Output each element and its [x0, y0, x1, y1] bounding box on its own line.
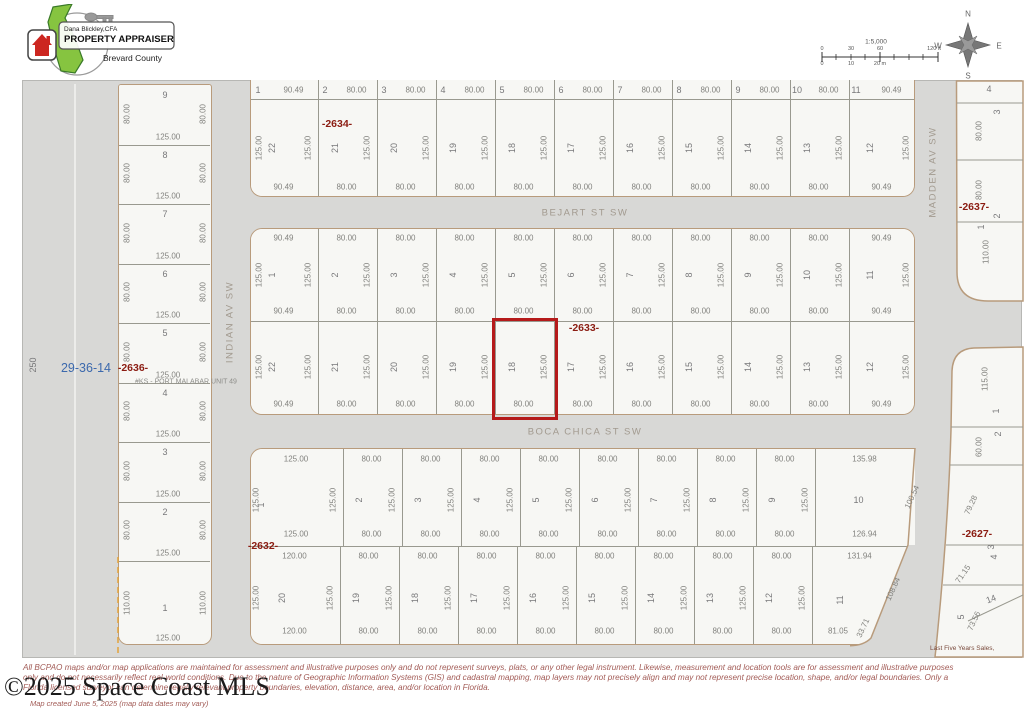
lot-number: 17	[566, 362, 576, 372]
lot-dimension: 80.00	[123, 342, 132, 362]
lot-number: 2	[330, 272, 340, 277]
lot-dimension: 125.00	[742, 488, 751, 512]
lot-dimension: 80.00	[774, 530, 794, 539]
lot-dimension: 80.00	[199, 520, 208, 540]
lot-dimension: 80.00	[631, 183, 651, 192]
lot-dimension: 80.00	[759, 86, 779, 95]
lot-number: 13	[802, 143, 812, 153]
lot-dimension: 80.00	[572, 307, 592, 316]
scale-m-label: 10	[848, 61, 854, 67]
lot-dimension: 80.00	[395, 307, 415, 316]
lot-number: 9	[735, 85, 740, 95]
lot-dimension: 80.00	[479, 455, 499, 464]
lot-dimension: 125.00	[444, 586, 453, 610]
sales-note: Last Five Years Sales,	[930, 645, 994, 652]
lot-dimension: 125.00	[540, 136, 549, 160]
lot-dimension: 125.00	[304, 355, 313, 379]
lot-number: 1	[255, 85, 260, 95]
lot-number: 12	[865, 362, 875, 372]
lot-number: 7	[625, 272, 635, 277]
lot-dimension: 80.00	[361, 455, 381, 464]
lot-dimension: 80.00	[771, 627, 791, 636]
lot-dimension: 80.00	[690, 234, 710, 243]
lot-dimension: 80.00	[975, 180, 984, 200]
lot-dimension: 80.00	[336, 234, 356, 243]
lot-dimension: 125.00	[252, 488, 261, 512]
lot-dimension: 126.94	[852, 530, 876, 539]
lot-dimension: 125.00	[506, 488, 515, 512]
lot-dimension: 125.00	[835, 263, 844, 287]
lot-dimension: 125.00	[683, 488, 692, 512]
lot-dimension: 90.49	[871, 307, 891, 316]
lot-dimension: 80.00	[975, 121, 984, 141]
lot-number: 8	[708, 497, 718, 502]
lot-dimension: 80.00	[700, 86, 720, 95]
appraiser-title: PROPERTY APPRAISER	[64, 34, 174, 45]
lot-number: 3	[381, 85, 386, 95]
lot-dimension: 125.00	[252, 586, 261, 610]
lot-dimension: 80.00	[199, 342, 208, 362]
lot-dimension: 125.00	[156, 251, 180, 260]
lot-number: 4	[989, 554, 999, 559]
lot-dimension: 80.00	[123, 104, 132, 124]
lot-dimension: 80.00	[749, 400, 769, 409]
block-label-2634: -2634-	[322, 118, 352, 130]
lot-dimension: 80.00	[123, 282, 132, 302]
lot-number: 4	[472, 497, 482, 502]
lot-number: 16	[625, 143, 635, 153]
lot-number: 5	[162, 328, 167, 338]
lot-dimension: 125.00	[624, 488, 633, 512]
lot-number: 16	[625, 362, 635, 372]
lot-dimension: 80.00	[361, 530, 381, 539]
lot-dimension: 80.00	[690, 307, 710, 316]
lot-dimension: 60.00	[975, 437, 984, 457]
lot-number: 19	[448, 362, 458, 372]
lot-dimension: 80.00	[771, 552, 791, 561]
lot-dimension: 125.00	[481, 355, 490, 379]
lot-dimension: 80.00	[690, 183, 710, 192]
lot-dimension: 90.49	[283, 86, 303, 95]
block-label-2636: -2636-	[118, 362, 148, 374]
lot-dimension: 90.49	[273, 234, 293, 243]
lot-dimension: 125.00	[156, 634, 180, 643]
scale-ft-label: 0	[820, 46, 823, 52]
lot-dimension: 80.00	[454, 234, 474, 243]
lot-dimension: 80.00	[123, 461, 132, 481]
lot-dimension: 120.00	[282, 552, 306, 561]
lot-dimension: 90.49	[871, 400, 891, 409]
lot-dimension: 125.00	[422, 355, 431, 379]
plat-map-page: Dana Blickley,CFA PROPERTY APPRAISER Bre…	[0, 0, 1024, 725]
lot-number: 4	[986, 84, 991, 94]
lot-dimension: 80.00	[513, 183, 533, 192]
lot-dimension: 80.00	[808, 307, 828, 316]
lot-dimension: 80.00	[572, 183, 592, 192]
lot-dimension: 80.00	[336, 400, 356, 409]
lot-dimension: 125.00	[388, 488, 397, 512]
lot-dimension: 125.00	[599, 263, 608, 287]
lot-number: 16	[528, 593, 538, 603]
lot-dimension: 125.00	[156, 489, 180, 498]
highlighted-lot-18	[492, 318, 558, 420]
mls-watermark: ©2025 Space Coast MLS	[4, 672, 270, 702]
lot-dimension: 80.00	[479, 530, 499, 539]
lot-dimension: 125.00	[658, 263, 667, 287]
lot-number: 5	[499, 85, 504, 95]
lot-dimension: 125.00	[284, 530, 308, 539]
lot-dimension: 125.00	[481, 263, 490, 287]
lot-dimension: 80.00	[749, 183, 769, 192]
lot-dimension: 125.00	[562, 586, 571, 610]
lot-dimension: 80.00	[572, 234, 592, 243]
lot-dimension: 125.00	[621, 586, 630, 610]
lot-dimension: 125.00	[284, 455, 308, 464]
lot-dimension: 125.00	[156, 311, 180, 320]
lot-dimension: 80.00	[199, 401, 208, 421]
lot-number: 7	[617, 85, 622, 95]
lot-dimension: 80.00	[420, 455, 440, 464]
block-label-2632: -2632-	[248, 540, 278, 552]
lot-dimension: 80.00	[454, 400, 474, 409]
lot-number: 11	[835, 595, 845, 604]
lot-dimension: 80.00	[535, 552, 555, 561]
lot-dimension: 80.00	[395, 183, 415, 192]
lot-number: 4	[162, 388, 167, 398]
lot-number: 22	[267, 143, 277, 153]
lot-dimension: 80.00	[749, 234, 769, 243]
compass-n: N	[965, 10, 971, 19]
lot-number: 6	[566, 272, 576, 277]
lot-number: 15	[684, 143, 694, 153]
block-label-2633: -2633-	[569, 322, 599, 334]
lot-dimension: 110.00	[982, 240, 991, 264]
lot-dimension: 125.00	[422, 136, 431, 160]
lot-dimension: 110.00	[123, 591, 132, 615]
lot-dimension: 125.00	[255, 263, 264, 287]
lot-dimension: 135.98	[852, 455, 876, 464]
block-2632	[250, 448, 915, 645]
lot-dimension: 125.00	[798, 586, 807, 610]
lot-dimension: 125.00	[156, 370, 180, 379]
lot-number: 3	[413, 497, 423, 502]
lot-number: 1	[991, 408, 1001, 413]
lot-dimension: 125.00	[801, 488, 810, 512]
lot-number: 20	[389, 362, 399, 372]
lot-number: 3	[162, 447, 167, 457]
lot-dimension: 80.00	[123, 520, 132, 540]
lot-number: 6	[558, 85, 563, 95]
street-label-indian: INDIAN AV SW	[225, 281, 236, 363]
lot-number: 1	[162, 603, 167, 613]
lot-number: 6	[162, 269, 167, 279]
lot-dimension: 90.49	[273, 307, 293, 316]
lot-dimension: 120.00	[282, 627, 306, 636]
lot-dimension: 80.00	[417, 552, 437, 561]
lot-dimension: 125.00	[363, 355, 372, 379]
lot-dimension: 90.49	[273, 400, 293, 409]
lot-dimension: 80.00	[538, 530, 558, 539]
lot-dimension: 90.49	[871, 234, 891, 243]
lot-dimension: 125.00	[540, 263, 549, 287]
lot-number: 18	[410, 593, 420, 603]
lot-number: 1	[267, 272, 277, 277]
lot-dimension: 80.00	[464, 86, 484, 95]
lot-dimension: 125.00	[422, 263, 431, 287]
compass-s: S	[965, 72, 970, 81]
lot-dimension: 80.00	[582, 86, 602, 95]
plat-note: #KS - PORT MALABAR UNIT 49	[135, 379, 237, 386]
lot-dimension: 80.00	[199, 104, 208, 124]
lot-dimension: 80.00	[513, 307, 533, 316]
lot-number: 2	[354, 497, 364, 502]
lot-dimension: 80.00	[808, 400, 828, 409]
street-label-bejart: BEJART ST SW	[542, 208, 629, 219]
lot-number: 10	[802, 270, 812, 280]
lot-dimension: 125.00	[156, 549, 180, 558]
logo-county-label: Brevard County	[103, 53, 162, 63]
lot-number: 21	[330, 362, 340, 372]
lot-number: 18	[507, 143, 517, 153]
scale-ratio: 1:5,000	[865, 39, 887, 46]
lot-dimension: 125.00	[156, 430, 180, 439]
lot-dimension: 80.00	[712, 627, 732, 636]
lot-number: 9	[743, 272, 753, 277]
scale-m-label: 0	[820, 61, 823, 67]
lot-dimension: 125.00	[717, 355, 726, 379]
lot-dimension: 125.00	[776, 355, 785, 379]
lot-number: 8	[684, 272, 694, 277]
lot-number: 3	[389, 272, 399, 277]
lot-dimension: 90.49	[273, 183, 293, 192]
scale-ft-label: 60	[877, 46, 883, 52]
lot-number: 12	[764, 593, 774, 603]
lot-dimension: 80.00	[420, 530, 440, 539]
lot-dimension: 80.00	[199, 461, 208, 481]
lot-dimension: 80.00	[749, 307, 769, 316]
lot-dimension: 80.00	[454, 307, 474, 316]
lot-number: 5	[531, 497, 541, 502]
lot-dimension: 125.00	[680, 586, 689, 610]
lot-dimension: 80.00	[808, 234, 828, 243]
lot-number: 4	[448, 272, 458, 277]
lot-number: 15	[684, 362, 694, 372]
lot-number: 2	[993, 431, 1003, 436]
lot-dimension: 80.00	[346, 86, 366, 95]
street-label-madden: MADDEN AV SW	[928, 126, 939, 217]
scale-ft-label: 120 ft	[927, 46, 941, 52]
street-label-boca-chica: BOCA CHICA ST SW	[528, 427, 643, 438]
lot-dimension: 125.00	[255, 136, 264, 160]
appraiser-name: Dana Blickley,CFA	[64, 26, 117, 33]
road-dimension-250: 250	[28, 357, 38, 372]
lot-dimension: 80.00	[656, 455, 676, 464]
scale-ft-label: 30	[848, 46, 854, 52]
lot-dimension: 80.00	[199, 223, 208, 243]
lot-dimension: 125.00	[717, 136, 726, 160]
lot-dimension: 80.00	[594, 552, 614, 561]
lot-dimension: 80.00	[476, 627, 496, 636]
lot-dimension: 80.00	[535, 627, 555, 636]
lot-dimension: 80.00	[476, 552, 496, 561]
lot-number: 13	[705, 593, 715, 603]
lot-number: 19	[351, 593, 361, 603]
lot-dimension: 80.00	[597, 455, 617, 464]
lot-number: 11	[865, 270, 875, 279]
lot-dimension: 80.00	[641, 86, 661, 95]
lot-dimension: 80.00	[774, 455, 794, 464]
lot-dimension: 125.00	[503, 586, 512, 610]
lot-dimension: 125.00	[835, 136, 844, 160]
lot-dimension: 80.00	[572, 400, 592, 409]
lot-dimension: 80.00	[123, 401, 132, 421]
lot-dimension: 125.00	[363, 263, 372, 287]
lot-number: 8	[162, 150, 167, 160]
lot-number: 10	[792, 85, 802, 95]
lot-dimension: 125.00	[326, 586, 335, 610]
lot-dimension: 125.00	[447, 488, 456, 512]
lot-number: 5	[956, 614, 966, 619]
lot-number: 2	[162, 507, 167, 517]
lot-dimension: 125.00	[599, 136, 608, 160]
lot-dimension: 125.00	[658, 136, 667, 160]
lot-number: 2	[322, 85, 327, 95]
lot-number: 6	[590, 497, 600, 502]
block-label-2627: -2627-	[962, 528, 992, 540]
lot-dimension: 80.00	[690, 400, 710, 409]
lot-dimension: 80.00	[653, 552, 673, 561]
lot-number: 7	[162, 209, 167, 219]
lot-number: 13	[802, 362, 812, 372]
lot-dimension: 125.00	[739, 586, 748, 610]
lot-dimension: 125.00	[565, 488, 574, 512]
lot-dimension: 125.00	[776, 263, 785, 287]
lot-dimension: 80.00	[808, 183, 828, 192]
lot-number: 1	[976, 224, 986, 229]
lot-number: 14	[646, 593, 656, 603]
lot-dimension: 125.00	[304, 136, 313, 160]
lot-number: 20	[389, 143, 399, 153]
lot-dimension: 131.94	[847, 552, 871, 561]
lot-number: 9	[162, 90, 167, 100]
lot-dimension: 125.00	[156, 192, 180, 201]
lot-number: 14	[743, 362, 753, 372]
lot-number: 3	[986, 544, 996, 549]
lot-dimension: 125.00	[385, 586, 394, 610]
lot-number: 22	[267, 362, 277, 372]
lot-number: 15	[587, 593, 597, 603]
lot-dimension: 80.00	[818, 86, 838, 95]
lot-dimension: 81.05	[828, 627, 848, 636]
key-icon	[85, 13, 113, 22]
lot-dimension: 80.00	[417, 627, 437, 636]
disclaimer-line-1: All BCPAO maps and/or map applications a…	[23, 663, 954, 672]
lot-dimension: 80.00	[395, 234, 415, 243]
lot-number: 21	[330, 143, 340, 153]
lot-number: 9	[767, 497, 777, 502]
lot-dimension: 125.00	[156, 132, 180, 141]
lot-dimension: 80.00	[336, 307, 356, 316]
lot-dimension: 80.00	[513, 234, 533, 243]
lot-dimension: 80.00	[538, 455, 558, 464]
lot-dimension: 80.00	[715, 455, 735, 464]
lot-dimension: 80.00	[454, 183, 474, 192]
lot-number: 5	[507, 272, 517, 277]
lot-dimension: 80.00	[358, 552, 378, 561]
lot-dimension: 80.00	[523, 86, 543, 95]
lot-dimension: 80.00	[631, 400, 651, 409]
lot-number: 10	[853, 495, 863, 505]
lot-dimension: 125.00	[902, 136, 911, 160]
lot-dimension: 125.00	[304, 263, 313, 287]
lot-number: 17	[566, 143, 576, 153]
section-label: 29-36-14	[61, 361, 111, 375]
lot-dimension: 80.00	[653, 627, 673, 636]
lot-dimension: 80.00	[199, 163, 208, 183]
lot-dimension: 80.00	[199, 282, 208, 302]
scale-m-label: 20 m	[874, 61, 886, 67]
lot-dimension: 80.00	[336, 183, 356, 192]
lot-number: 3	[992, 109, 1002, 114]
lot-dimension: 125.00	[835, 355, 844, 379]
lot-number: 20	[277, 593, 287, 603]
lot-dimension: 80.00	[631, 234, 651, 243]
lot-dimension: 80.00	[358, 627, 378, 636]
lot-number: 7	[649, 497, 659, 502]
lot-number: 17	[469, 593, 479, 603]
lot-dimension: 115.00	[981, 367, 990, 391]
lot-dimension: 80.00	[123, 163, 132, 183]
lot-dimension: 125.00	[717, 263, 726, 287]
block-label-2637: -2637-	[959, 201, 989, 213]
lot-dimension: 90.49	[881, 86, 901, 95]
lot-dimension: 80.00	[594, 627, 614, 636]
lot-dimension: 125.00	[902, 263, 911, 287]
lot-number: 4	[440, 85, 445, 95]
lot-dimension: 90.49	[871, 183, 891, 192]
lot-dimension: 125.00	[363, 136, 372, 160]
lot-dimension: 125.00	[658, 355, 667, 379]
compass-e: E	[996, 42, 1001, 51]
lot-dimension: 125.00	[902, 355, 911, 379]
lot-number: 11	[851, 85, 860, 95]
lot-dimension: 125.00	[599, 355, 608, 379]
lot-dimension: 80.00	[715, 530, 735, 539]
lot-dimension: 125.00	[255, 355, 264, 379]
lot-dimension: 80.00	[405, 86, 425, 95]
block-2634	[250, 80, 915, 197]
lot-dimension: 80.00	[395, 400, 415, 409]
lot-dimension: 125.00	[776, 136, 785, 160]
lot-dimension: 110.00	[199, 591, 208, 615]
lot-number: 12	[865, 143, 875, 153]
lot-dimension: 80.00	[597, 530, 617, 539]
lot-dimension: 125.00	[329, 488, 338, 512]
lot-dimension: 80.00	[631, 307, 651, 316]
lot-number: 19	[448, 143, 458, 153]
lot-number: 2	[992, 213, 1002, 218]
lot-number: 8	[676, 85, 681, 95]
lot-dimension: 80.00	[656, 530, 676, 539]
lot-dimension: 125.00	[481, 136, 490, 160]
lot-number: 14	[743, 143, 753, 153]
lot-dimension: 80.00	[712, 552, 732, 561]
lot-dimension: 80.00	[123, 223, 132, 243]
